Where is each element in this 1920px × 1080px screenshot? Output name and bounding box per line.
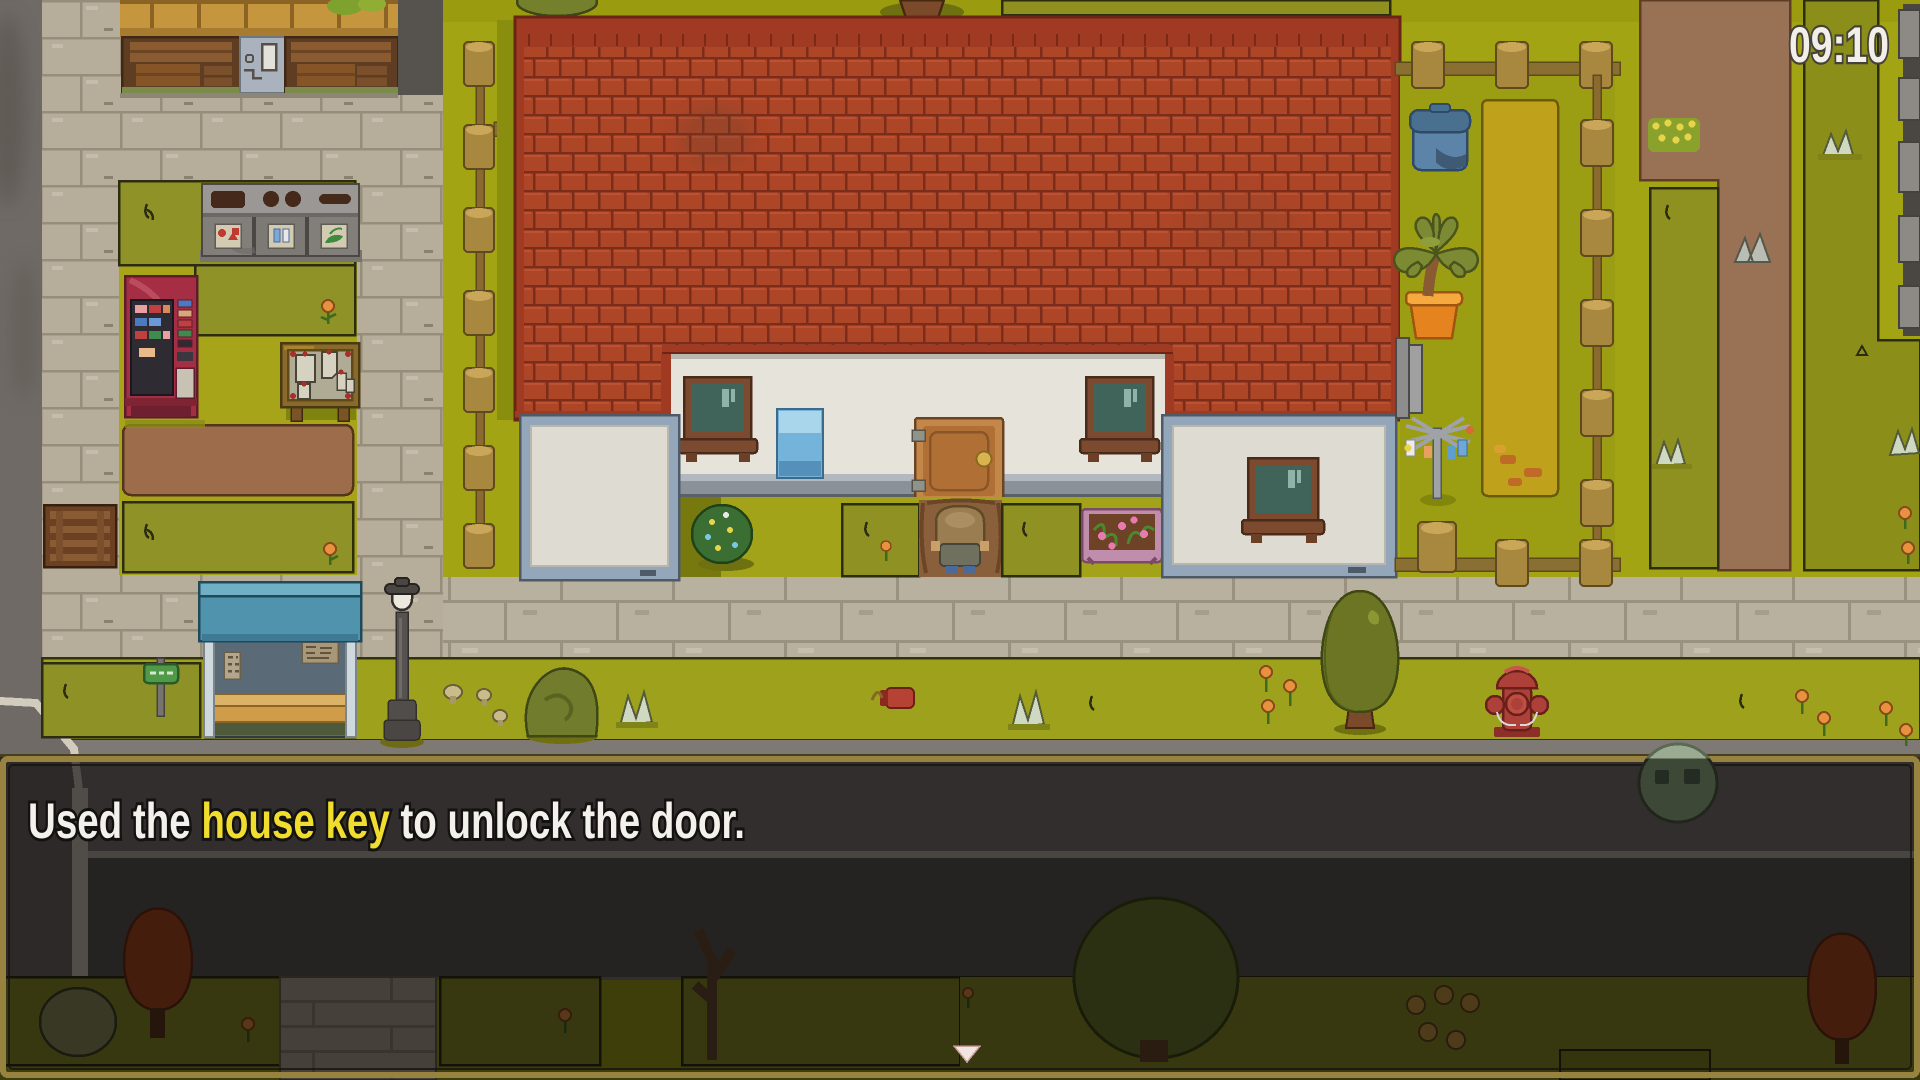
svg-text:09:10: 09:10 [1789, 17, 1889, 73]
svg-text:Used the house key to unlock t: Used the house key to unlock the door. [28, 793, 745, 849]
